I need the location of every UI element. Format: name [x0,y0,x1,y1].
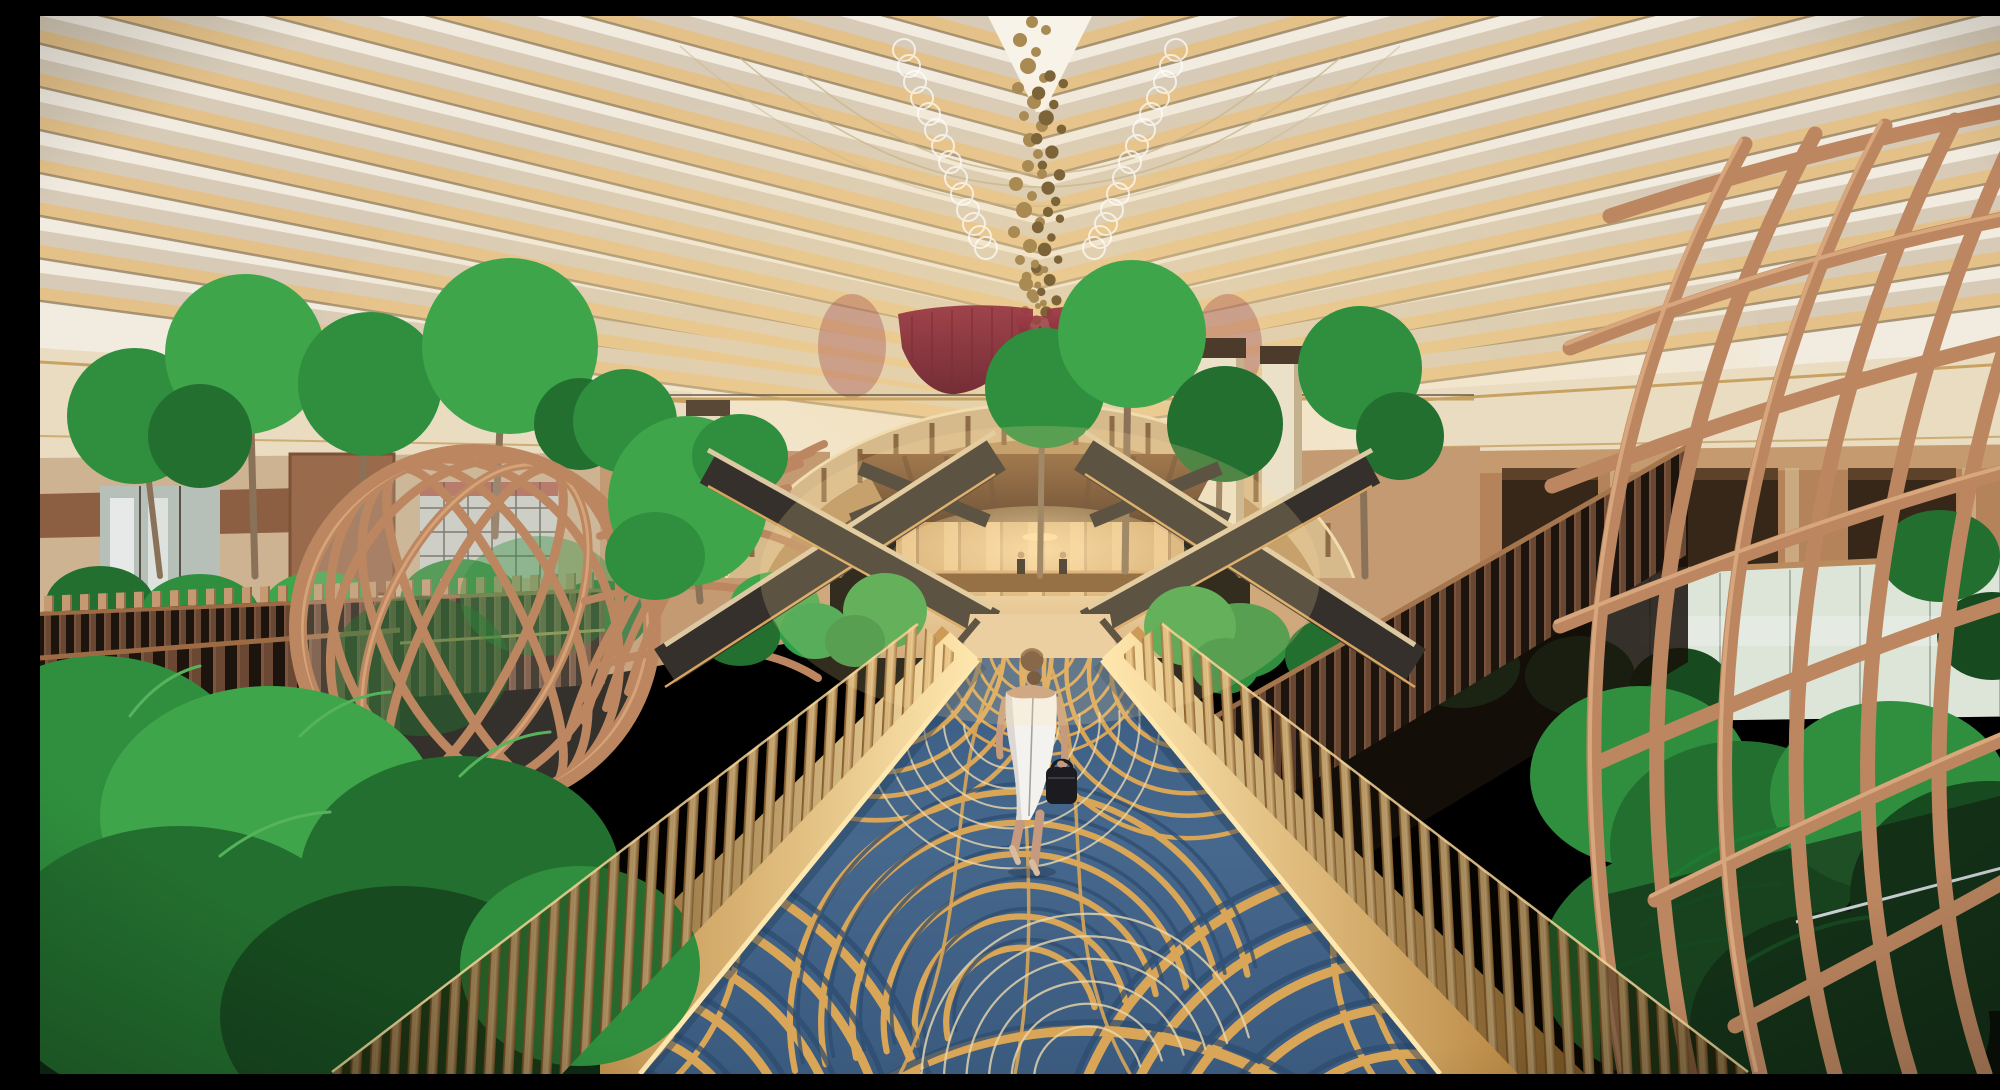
atrium-scene: Panoramic photograph of a grand hotel at… [40,16,2000,1074]
atrium-photograph: Panoramic photograph of a grand hotel at… [40,16,2000,1074]
vignette [40,16,2000,1074]
